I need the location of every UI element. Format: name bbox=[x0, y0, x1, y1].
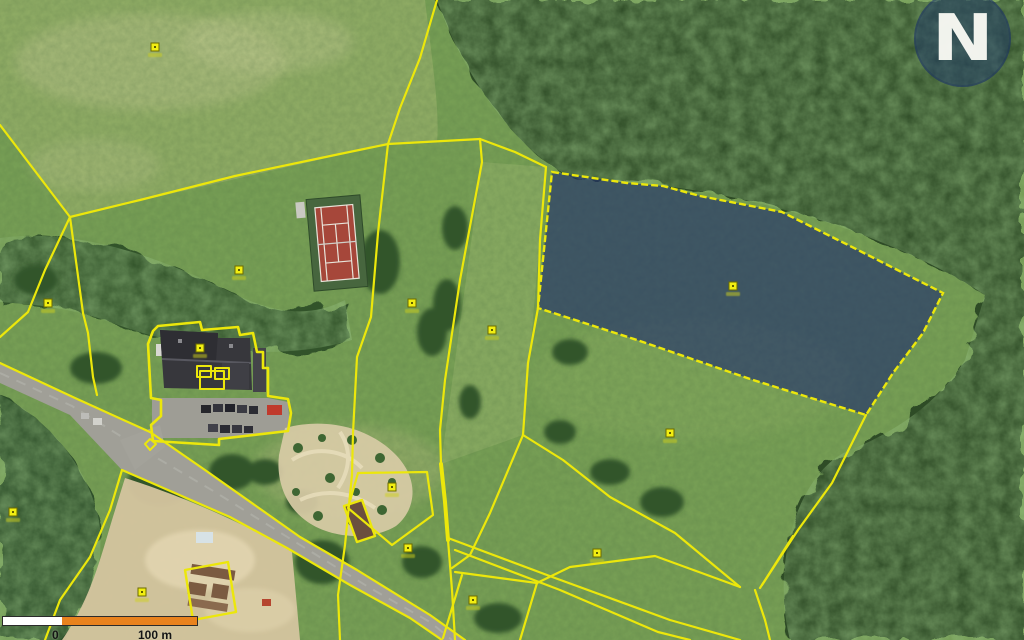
parcel-number-label[interactable] bbox=[401, 554, 415, 558]
parcel-number-label[interactable] bbox=[193, 354, 207, 358]
parcel-point-dot bbox=[669, 432, 671, 434]
parcel-point-dot bbox=[141, 591, 143, 593]
parcel-number-label[interactable] bbox=[148, 53, 162, 57]
parcel-number-label[interactable] bbox=[6, 518, 20, 522]
parcel-point-dot bbox=[391, 486, 393, 488]
scale-label-100m: 100 m bbox=[138, 628, 172, 640]
red-vehicle bbox=[267, 405, 282, 415]
parcel-point-dot bbox=[154, 46, 156, 48]
parcel-number-label[interactable] bbox=[232, 276, 246, 280]
site-shed bbox=[196, 532, 213, 543]
parcel-point-dot bbox=[596, 552, 598, 554]
parcel-point-dot bbox=[472, 599, 474, 601]
scale-bar bbox=[2, 616, 198, 626]
parcel-point-dot bbox=[411, 302, 413, 304]
parcel-point-dot bbox=[47, 302, 49, 304]
parcel-point-dot bbox=[407, 547, 409, 549]
parcel-number-label[interactable] bbox=[385, 493, 399, 497]
parcel-number-label[interactable] bbox=[466, 606, 480, 610]
app-logo-letter: N bbox=[932, 7, 994, 71]
parcel-point-dot bbox=[732, 285, 734, 287]
scale-bar-segment-1 bbox=[3, 617, 62, 625]
parcel-point-dot bbox=[12, 511, 14, 513]
parcel-number-label[interactable] bbox=[726, 292, 740, 296]
parcel-number-label[interactable] bbox=[485, 336, 499, 340]
scale-bar-segment-2 bbox=[62, 617, 197, 625]
parcel-number-label[interactable] bbox=[41, 309, 55, 313]
parcel-point-dot bbox=[491, 329, 493, 331]
parcel-number-label[interactable] bbox=[590, 559, 604, 563]
map-viewport[interactable]: 0 100 m N bbox=[0, 0, 1024, 640]
parcel-number-label[interactable] bbox=[135, 598, 149, 602]
parcel-number-label[interactable] bbox=[663, 439, 677, 443]
parcel-point-dot bbox=[199, 347, 201, 349]
machinery bbox=[262, 599, 271, 606]
satellite-map[interactable] bbox=[0, 0, 1024, 640]
parcel-point-dot bbox=[238, 269, 240, 271]
parcel-number-label[interactable] bbox=[405, 309, 419, 313]
scale-label-zero: 0 bbox=[52, 628, 59, 640]
